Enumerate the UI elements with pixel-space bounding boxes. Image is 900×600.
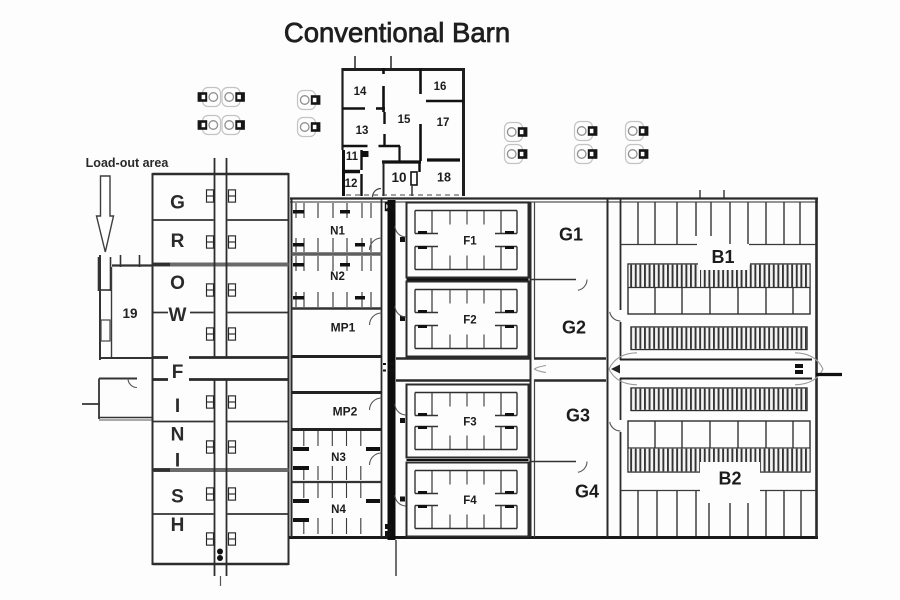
svg-text:N2: N2 xyxy=(330,271,345,283)
svg-text:F: F xyxy=(172,362,184,383)
svg-text:12: 12 xyxy=(345,178,358,190)
svg-text:H: H xyxy=(171,515,185,536)
svg-text:11: 11 xyxy=(346,151,359,163)
svg-text:N: N xyxy=(171,425,185,446)
svg-text:G: G xyxy=(170,193,185,214)
svg-text:N4: N4 xyxy=(331,504,346,516)
svg-text:16: 16 xyxy=(434,81,447,93)
svg-text:W: W xyxy=(169,305,187,326)
svg-text:O: O xyxy=(170,273,185,294)
svg-text:N1: N1 xyxy=(330,226,345,238)
svg-text:19: 19 xyxy=(122,306,137,321)
svg-text:Load-out area: Load-out area xyxy=(86,156,170,170)
svg-text:14: 14 xyxy=(354,86,367,98)
svg-text:I: I xyxy=(175,451,180,472)
svg-text:17: 17 xyxy=(437,117,450,129)
svg-text:F4: F4 xyxy=(463,495,477,507)
svg-text:18: 18 xyxy=(437,171,451,185)
svg-text:MP2: MP2 xyxy=(333,405,358,419)
svg-text:N3: N3 xyxy=(331,452,346,464)
svg-text:I: I xyxy=(175,396,180,417)
svg-text:10: 10 xyxy=(391,170,406,185)
svg-text:F2: F2 xyxy=(463,315,476,327)
svg-text:G1: G1 xyxy=(559,225,583,245)
svg-text:R: R xyxy=(171,231,185,252)
svg-text:F1: F1 xyxy=(463,236,477,248)
svg-text:15: 15 xyxy=(398,114,411,126)
svg-text:Conventional Barn: Conventional Barn xyxy=(284,17,510,48)
svg-text:13: 13 xyxy=(356,125,369,137)
svg-text:B1: B1 xyxy=(711,247,734,267)
svg-text:G3: G3 xyxy=(566,406,590,426)
svg-text:MP1: MP1 xyxy=(331,321,356,335)
svg-text:B2: B2 xyxy=(718,469,741,489)
svg-text:G4: G4 xyxy=(575,482,599,502)
svg-text:G2: G2 xyxy=(562,318,586,338)
svg-text:F3: F3 xyxy=(463,417,476,429)
svg-text:S: S xyxy=(171,487,184,508)
